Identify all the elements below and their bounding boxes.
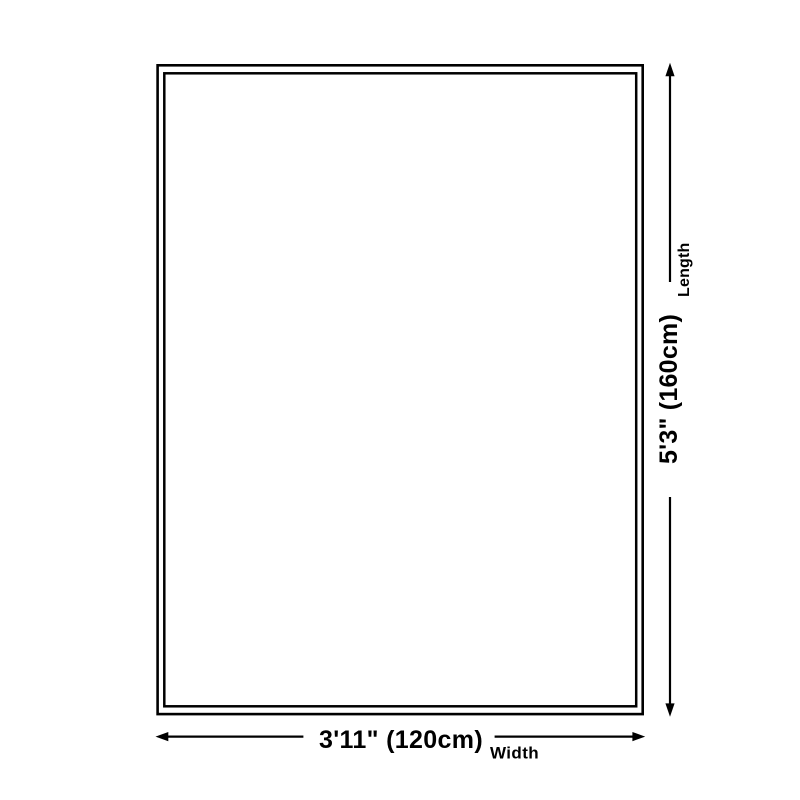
svg-text:5'3" (160cm): 5'3" (160cm) (655, 314, 683, 464)
svg-text:Length: Length (676, 242, 693, 297)
svg-text:3'11" (120cm): 3'11" (120cm) (319, 726, 483, 754)
svg-text:Width: Width (490, 744, 539, 763)
